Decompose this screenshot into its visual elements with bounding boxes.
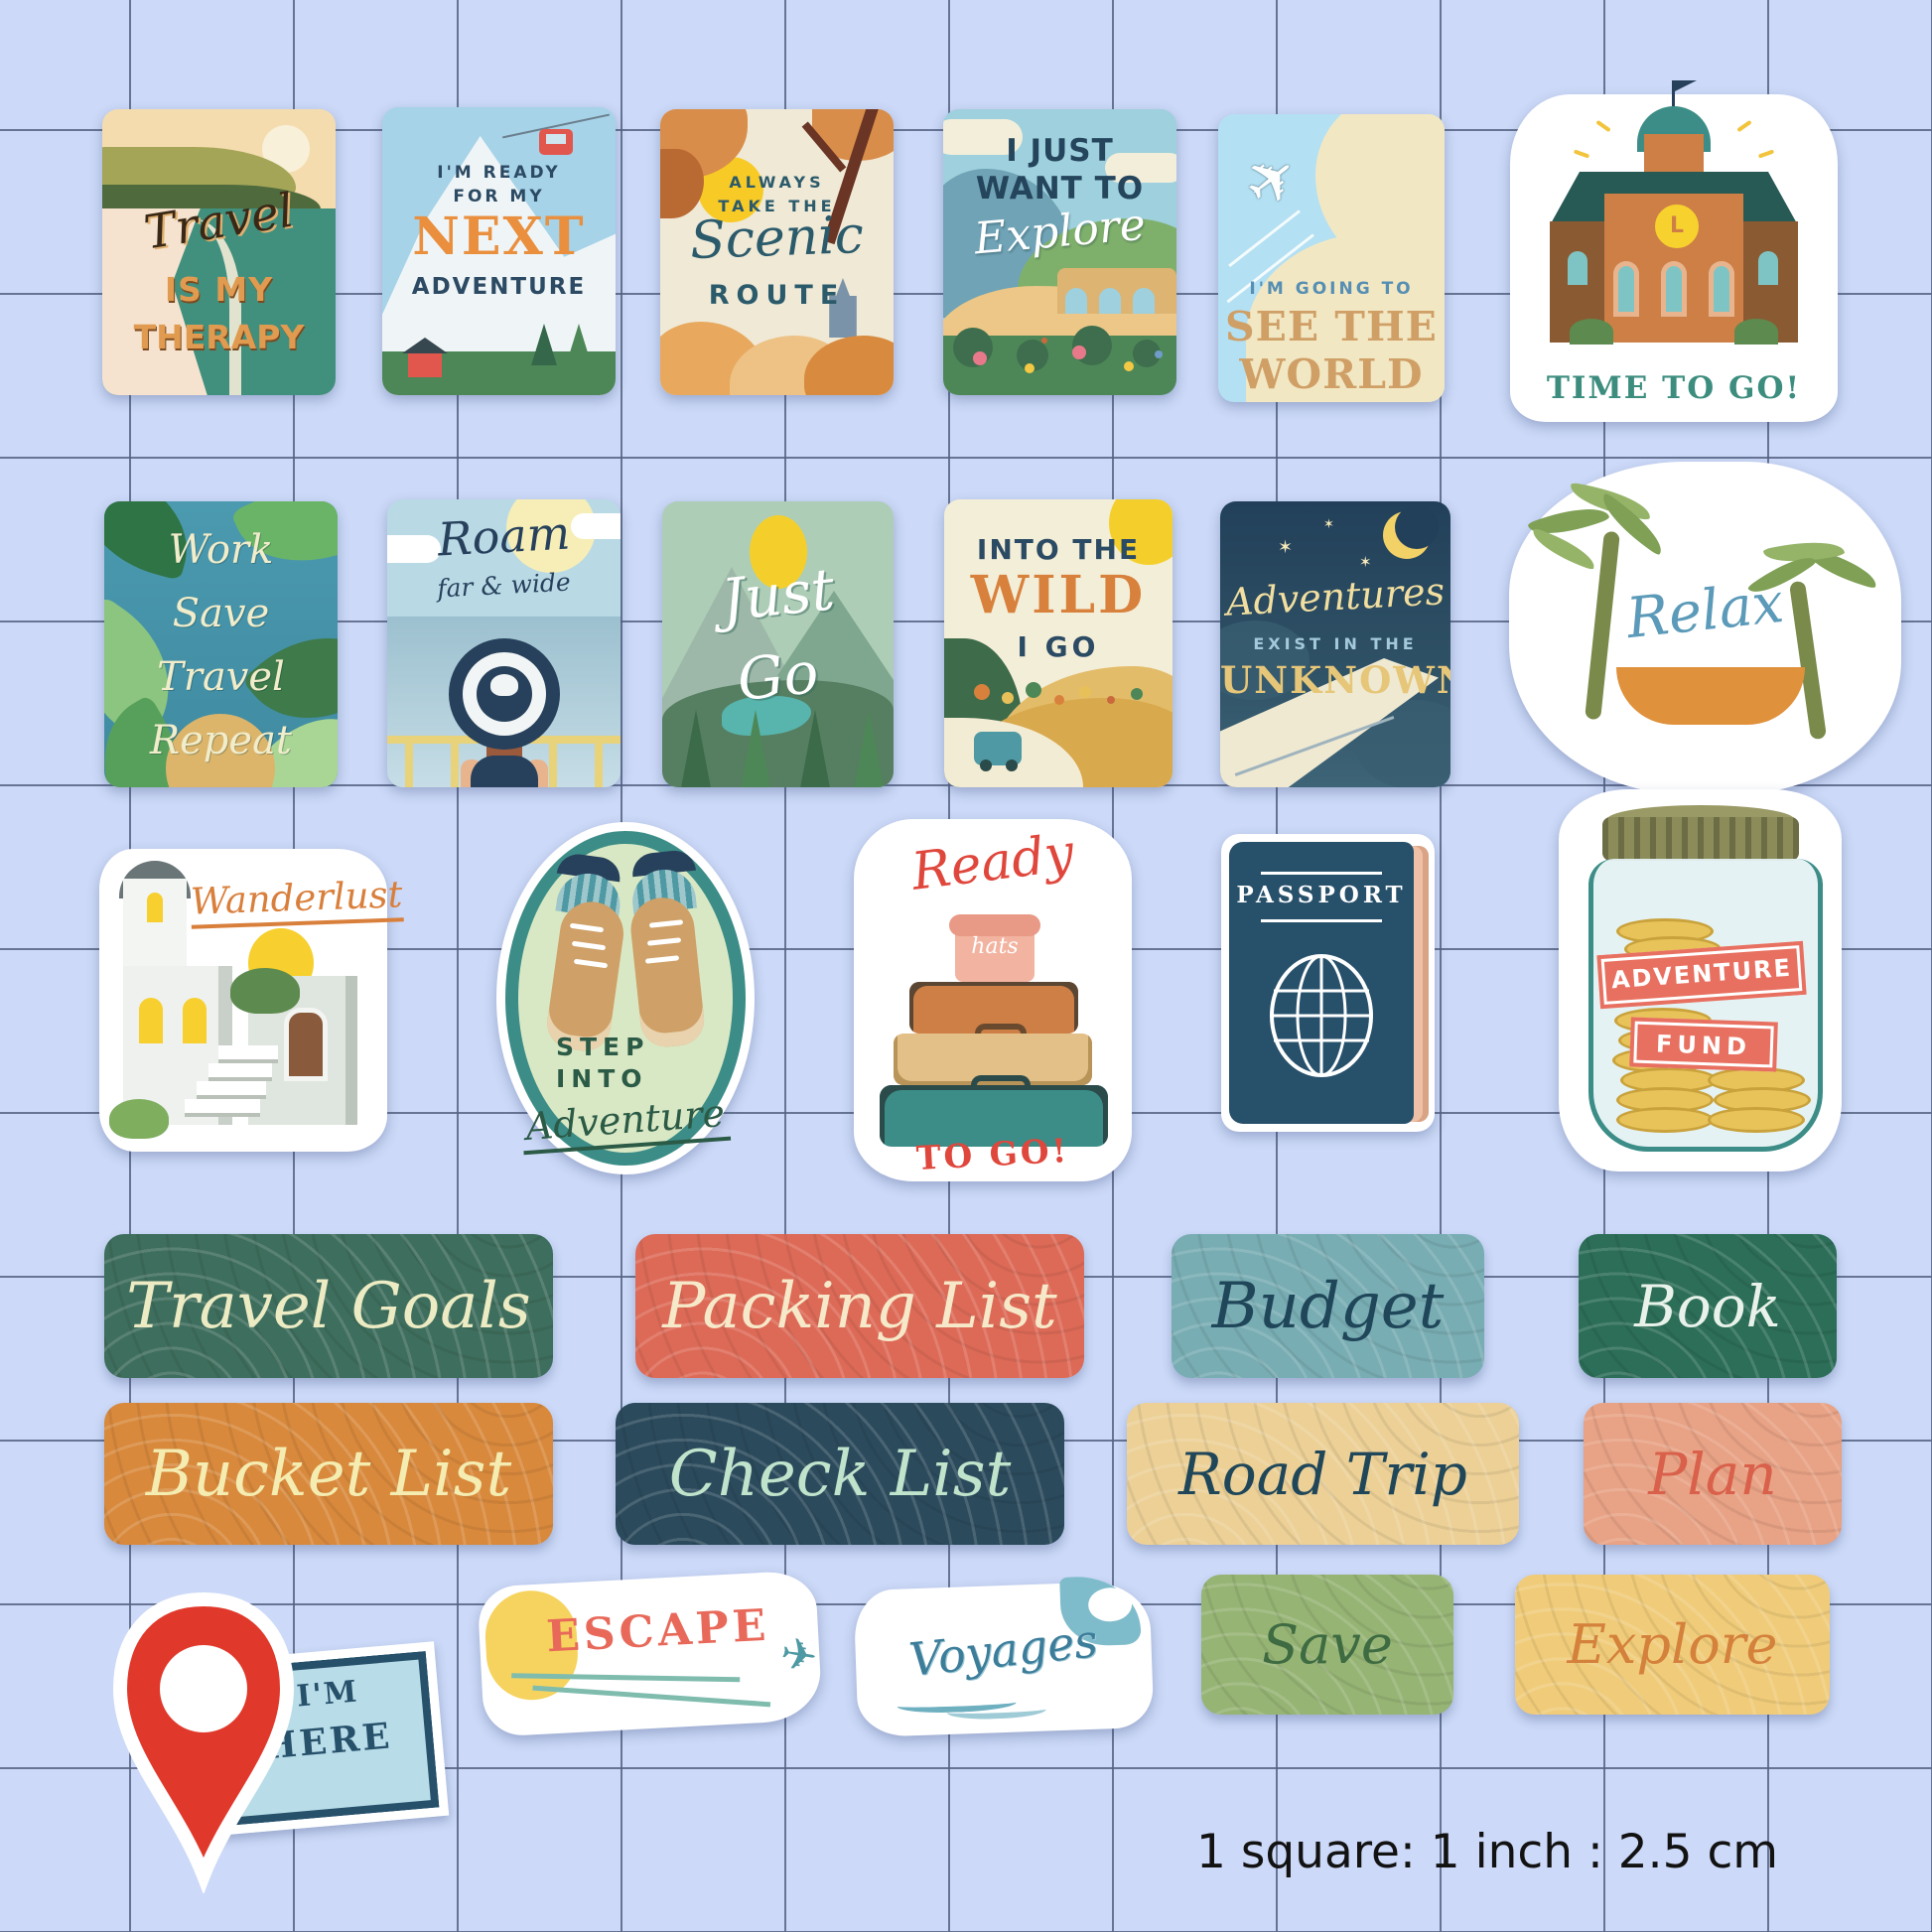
sticker-i-just-want-to-explore: I JUST WANT TO Explore xyxy=(943,109,1176,395)
moon-mask xyxy=(1395,505,1439,549)
railing-post xyxy=(595,742,603,787)
map-pin-icon xyxy=(104,1586,303,1893)
tree-icon xyxy=(566,324,592,365)
sticker-step-into-adventure: STEP INTO Adventure xyxy=(496,822,755,1174)
label-sticker-save: Save xyxy=(1201,1575,1453,1715)
door-shape xyxy=(284,1008,328,1081)
sticker-text: NEXT xyxy=(382,207,616,267)
sticker-text: STEP xyxy=(556,1033,649,1061)
coin-icon xyxy=(1708,1107,1805,1133)
sticker-see-the-world: ✈ I'M GOING TO SEE THE WORLD xyxy=(1218,114,1445,402)
sticker-text: Just xyxy=(662,549,894,640)
sticker-text: Voyages xyxy=(854,1608,1154,1693)
sticker-text: Relax xyxy=(1507,559,1904,664)
sticker-im-here: I'M HERE xyxy=(104,1586,444,1897)
label-text: Check List xyxy=(669,1438,1012,1511)
label-sticker-plan: Plan xyxy=(1584,1403,1842,1545)
sticker-text: THERAPY xyxy=(102,318,336,356)
sticker-ready-to-go: Ready hats TO GO! xyxy=(854,819,1132,1181)
sticker-sheet: Travel IS MY THERAPY I'M READY FOR MY NE… xyxy=(0,0,1932,1932)
railing-post xyxy=(451,742,459,787)
sticker-time-to-go: L TIME TO GO! xyxy=(1510,94,1838,422)
autumn-trees-shape xyxy=(974,684,990,700)
cable-car-window xyxy=(546,134,566,144)
sparkle-shape xyxy=(1736,120,1751,132)
label-sticker-road-trip: Road Trip xyxy=(1127,1403,1519,1545)
sticker-passport: PASSPORT xyxy=(1221,834,1435,1132)
sticker-adventure-fund: ADVENTURE FUND xyxy=(1559,789,1842,1172)
stair-step xyxy=(197,1081,266,1099)
flowers-shape xyxy=(973,351,987,365)
airplane-icon: ✈ xyxy=(777,1628,821,1684)
arch-window xyxy=(1661,261,1687,317)
sticker-scenic-route: ALWAYS TAKE THE Scenic ROUTE xyxy=(660,109,894,395)
airplane-icon: ✈ xyxy=(1229,136,1314,225)
railing-post xyxy=(549,742,557,787)
label-sticker-check-list: Check List xyxy=(616,1403,1064,1545)
arch-window xyxy=(1613,261,1639,317)
label-text: Explore xyxy=(1568,1613,1778,1676)
sticker-text: Roam xyxy=(387,503,621,569)
sticker-text: Ready xyxy=(851,816,1134,909)
woman-figure xyxy=(471,756,538,787)
house-roof xyxy=(402,338,448,353)
bush-shape xyxy=(1570,319,1613,345)
clock-icon: L xyxy=(1652,202,1702,251)
sticker-work-save-travel-repeat: Work Save Travel Repeat xyxy=(104,501,338,787)
sticker-text: EXIST IN THE xyxy=(1220,634,1450,653)
sticker-roam-far-and-wide: Roam far & wide xyxy=(387,499,621,787)
sticker-text: Travel xyxy=(104,654,338,700)
hat-box-label: hats xyxy=(955,934,1035,959)
sticker-text: INTO THE xyxy=(944,533,1173,566)
sticker-text: I JUST xyxy=(943,133,1176,169)
railing-post xyxy=(405,742,413,787)
divider-line xyxy=(1261,872,1382,875)
sticker-text: I'M GOING TO xyxy=(1218,279,1445,299)
sticker-wanderlust: Wanderlust xyxy=(99,849,387,1152)
pine-tree-icon xyxy=(853,710,885,787)
sticker-text: Wanderlust xyxy=(190,873,403,928)
bush-shape xyxy=(109,1099,169,1139)
sticker-text: ADVENTURE xyxy=(382,274,616,300)
sticker-text: IS MY xyxy=(102,270,336,309)
label-text: Bucket List xyxy=(146,1438,511,1511)
hat-top xyxy=(490,674,518,696)
sticker-text: ALWAYS xyxy=(660,173,894,192)
star-icon: ✶ xyxy=(1359,553,1372,571)
pine-tree-icon xyxy=(740,710,771,787)
window-shape xyxy=(147,893,163,922)
sticker-adventures-unknown: ✶ ✶ ✶ Adventures EXIST IN THE UNKNOWN xyxy=(1220,501,1450,787)
jar-lid xyxy=(1602,817,1799,861)
bush-shape xyxy=(230,968,300,1014)
scale-note: 1 square: 1 inch : 2.5 cm xyxy=(1196,1825,1840,1879)
label-text: Travel Goals xyxy=(126,1270,530,1343)
label-sticker-bucket-list: Bucket List xyxy=(104,1403,553,1545)
house-icon xyxy=(408,353,442,377)
label-text: Book xyxy=(1634,1273,1781,1340)
stair-step xyxy=(185,1099,260,1117)
hat-box-lid xyxy=(949,914,1040,936)
label-text: Plan xyxy=(1648,1441,1777,1508)
sticker-just-go: Just Go xyxy=(662,501,894,787)
sticker-text: PASSPORT xyxy=(1229,882,1414,908)
sticker-relax: Relax xyxy=(1509,462,1901,794)
sticker-text: Save xyxy=(104,591,338,636)
label-text: Packing List xyxy=(662,1270,1057,1343)
tree-icon xyxy=(531,324,557,365)
sticker-text: TIME TO GO! xyxy=(1510,370,1838,406)
sticker-text: Adventures xyxy=(1220,569,1450,624)
label-text: Road Trip xyxy=(1178,1441,1467,1508)
sticker-text: UNKNOWN xyxy=(1220,658,1450,702)
label-text: Budget xyxy=(1212,1270,1445,1343)
sticker-travel-is-my-therapy: Travel IS MY THERAPY xyxy=(102,109,336,395)
sticker-text: Scenic xyxy=(660,205,894,272)
divider-line xyxy=(1261,919,1382,922)
star-icon: ✶ xyxy=(1323,517,1334,532)
sticker-text: FUND xyxy=(1630,1029,1778,1061)
sticker-text: INTO xyxy=(556,1064,648,1093)
sparkle-shape xyxy=(1595,120,1610,132)
star-icon: ✶ xyxy=(1278,537,1293,558)
sparkle-shape xyxy=(1574,149,1589,158)
label-sticker-budget: Budget xyxy=(1172,1234,1484,1378)
pine-tree-icon xyxy=(799,710,831,787)
coin-icon xyxy=(1616,1107,1714,1133)
globe-icon xyxy=(1267,951,1376,1080)
bush-shape xyxy=(1734,319,1778,345)
pine-tree-icon xyxy=(680,710,712,787)
sticker-next-adventure: I'M READY FOR MY NEXT ADVENTURE xyxy=(382,107,616,395)
arch-window xyxy=(1709,261,1734,317)
bus-wheel xyxy=(1006,759,1018,771)
sticker-into-the-wild-i-go: INTO THE WILD I GO xyxy=(944,499,1173,787)
window-shape xyxy=(139,998,163,1043)
label-sticker-explore: Explore xyxy=(1515,1575,1830,1715)
sparkle-shape xyxy=(1758,149,1774,158)
sticker-voyages: Voyages xyxy=(854,1581,1155,1737)
contrail-line xyxy=(532,1686,770,1708)
hammock-shape xyxy=(1616,667,1805,725)
sticker-text: Work xyxy=(104,527,338,573)
sticker-text: ROUTE xyxy=(660,280,894,311)
sticker-text: FOR MY xyxy=(382,187,616,207)
palm-frond xyxy=(1528,528,1600,571)
stair-step xyxy=(218,1045,278,1063)
label-sticker-book: Book xyxy=(1579,1234,1837,1378)
sticker-text: I'M READY xyxy=(382,163,616,183)
label-text: Save xyxy=(1262,1613,1393,1676)
label-sticker-travel-goals: Travel Goals xyxy=(104,1234,553,1378)
dome-base xyxy=(1644,134,1704,176)
aqueduct-shape xyxy=(1057,268,1176,314)
stair-step xyxy=(208,1063,272,1081)
sticker-text: far & wide xyxy=(387,565,621,606)
flag-icon xyxy=(1675,80,1697,91)
bus-wheel xyxy=(980,759,992,771)
sticker-text: WILD xyxy=(944,565,1173,625)
window-shape xyxy=(183,998,207,1043)
sticker-text: Repeat xyxy=(104,718,338,763)
sticker-text: WORLD xyxy=(1218,350,1445,398)
label-sticker-packing-list: Packing List xyxy=(635,1234,1084,1378)
sticker-text: SEE THE xyxy=(1218,303,1445,350)
sticker-escape: ESCAPE ✈ xyxy=(477,1570,822,1737)
